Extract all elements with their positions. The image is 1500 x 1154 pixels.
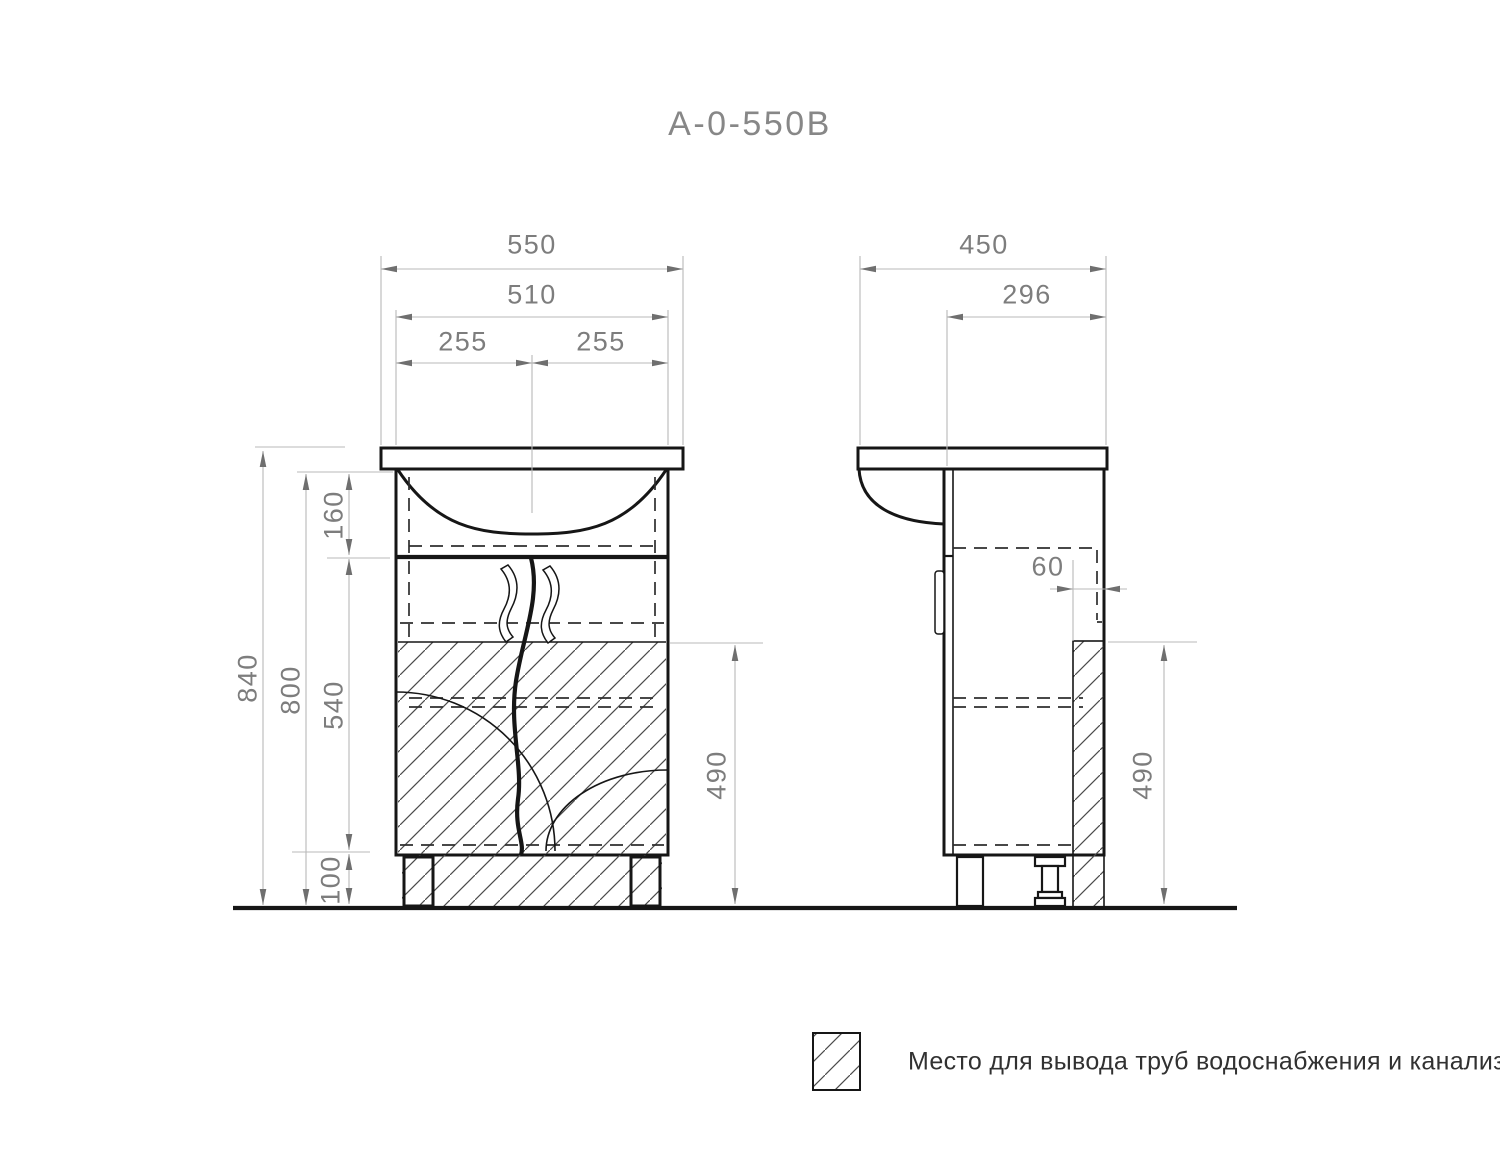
front-pipe-zone-hatch-lower <box>402 855 662 906</box>
side-countertop <box>858 448 1107 469</box>
side-pipe-zone-hatch <box>1073 641 1104 907</box>
side-adjustable-foot <box>1035 857 1065 906</box>
dim-front-total-height: 840 <box>235 653 262 703</box>
dim-front-cabinet-width: 510 <box>507 282 557 309</box>
dim-side-total-depth: 450 <box>959 232 1009 259</box>
dim-front-cabinet-height: 800 <box>278 665 305 715</box>
dim-side-cabinet-depth: 296 <box>1002 282 1052 309</box>
technical-drawing-page: A-0-550B 550 510 255 255 450 296 60 840 … <box>0 0 1500 1154</box>
side-view-drawing <box>858 448 1107 907</box>
dim-front-total-width: 550 <box>507 232 557 259</box>
dim-front-leg-height: 100 <box>318 855 345 905</box>
side-door-handle <box>935 571 944 634</box>
drawing-canvas <box>0 0 1500 1154</box>
dim-side-pipe-zone-height: 490 <box>1130 750 1157 800</box>
dim-front-left-half: 255 <box>438 329 488 356</box>
drawing-title: A-0-550B <box>668 107 832 141</box>
legend-hatch-swatch <box>813 1033 860 1090</box>
dim-side-pipe-offset: 60 <box>1031 554 1064 581</box>
dim-front-door-section: 540 <box>321 680 348 730</box>
dim-front-top-section: 160 <box>321 490 348 540</box>
legend-label: Место для вывода труб водоснабжения и ка… <box>908 1050 1500 1075</box>
dim-front-pipe-zone-height: 490 <box>704 750 731 800</box>
front-pipe-zone-hatch <box>398 642 666 854</box>
side-front-leg <box>957 857 983 906</box>
dim-front-right-half: 255 <box>576 329 626 356</box>
front-view-drawing <box>381 448 683 906</box>
